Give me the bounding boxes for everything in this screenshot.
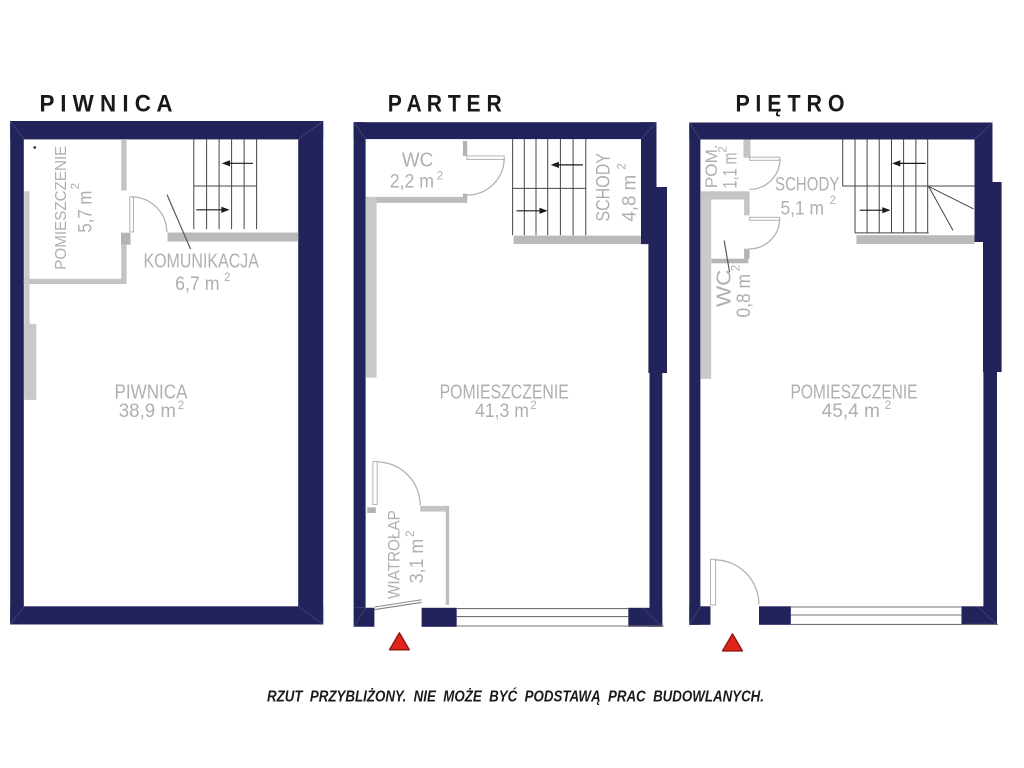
svg-text:2: 2 [224, 272, 230, 284]
svg-text:1,1 m: 1,1 m [721, 153, 742, 189]
svg-text:POMIESZCZENIE: POMIESZCZENIE [53, 146, 70, 270]
svg-text:P A R T E R: P A R T E R [388, 90, 502, 117]
svg-text:2: 2 [617, 163, 629, 169]
svg-text:WC: WC [713, 270, 735, 307]
svg-text:45,4 m: 45,4 m [822, 401, 880, 422]
svg-text:2: 2 [70, 183, 82, 189]
svg-text:2: 2 [885, 400, 891, 412]
svg-text:2: 2 [530, 400, 536, 412]
svg-text:41,3 m: 41,3 m [475, 401, 529, 422]
svg-text:P I W N I C A: P I W N I C A [40, 90, 173, 117]
svg-text:38,9 m: 38,9 m [119, 401, 176, 422]
svg-text:2: 2 [718, 146, 730, 152]
svg-text:SCHODY: SCHODY [594, 153, 615, 222]
svg-text:2,2 m: 2,2 m [390, 172, 434, 193]
svg-text:3,1 m: 3,1 m [407, 539, 428, 584]
svg-text:2: 2 [437, 171, 443, 183]
svg-text:6,7 m: 6,7 m [175, 274, 220, 295]
svg-text:2: 2 [178, 400, 184, 412]
svg-text:2: 2 [830, 195, 836, 207]
svg-text:RZUT PRZYBLIŻONY. NIE MOŻE: RZUT PRZYBLIŻONY. NIE MOŻE BYĆ PODSTAWĄ … [267, 688, 764, 706]
svg-text:5,7 m: 5,7 m [76, 191, 97, 233]
svg-text:WC: WC [402, 150, 433, 172]
svg-text:P I Ę T R O: P I Ę T R O [736, 90, 845, 117]
svg-text:2: 2 [405, 531, 417, 537]
svg-text:0,8 m: 0,8 m [734, 274, 755, 318]
svg-text:5,1 m: 5,1 m [780, 199, 824, 220]
svg-text:SCHODY: SCHODY [775, 175, 840, 196]
svg-text:2: 2 [731, 265, 743, 271]
svg-text:WIATROŁAP: WIATROŁAP [384, 510, 403, 599]
svg-text:KOMUNIKACJA: KOMUNIKACJA [143, 250, 259, 272]
svg-text:4,8 m: 4,8 m [619, 175, 640, 222]
